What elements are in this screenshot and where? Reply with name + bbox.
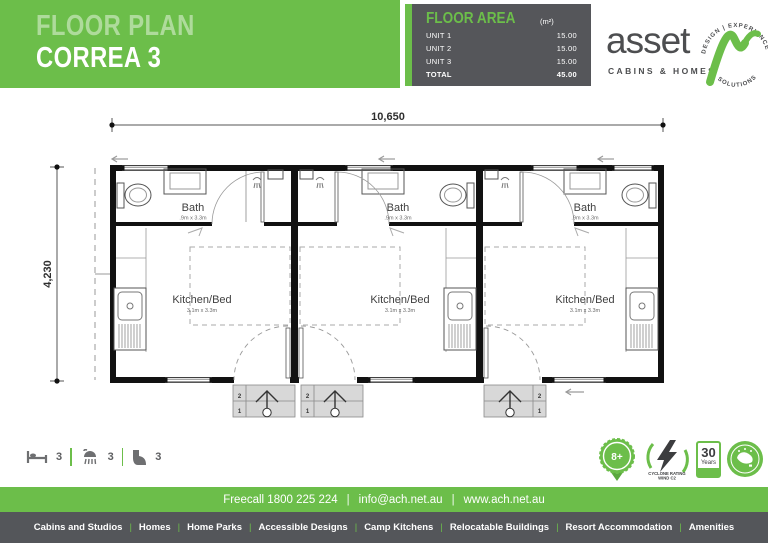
toilet-fixture <box>622 184 648 206</box>
nav-separator: | <box>355 522 357 533</box>
australian-made-badge <box>726 440 764 478</box>
legend-divider <box>122 448 124 466</box>
entry-stairs: 2 1 <box>484 385 546 417</box>
contact-separator: | <box>452 494 455 506</box>
room-dims-kitchen-bed: 3.1m x 3.3m <box>187 308 218 314</box>
window <box>368 378 415 383</box>
nav-item-camp-kitchens[interactable]: Camp Kitchens <box>364 522 433 533</box>
shower-icon <box>80 449 100 466</box>
warranty-badge-text: 8+ <box>611 452 623 463</box>
cabinet-fixture <box>485 170 498 179</box>
entry-stairs: 2 1 <box>233 385 295 417</box>
toilet-fixture <box>125 184 151 206</box>
roof-overhang-line <box>95 168 110 380</box>
window <box>531 166 579 171</box>
window-slide-arrows <box>112 156 614 395</box>
room-label-bath: Bath <box>574 202 597 214</box>
room-dims-bath: .9m x 3.3m <box>179 216 207 222</box>
nav-separator: | <box>249 522 251 533</box>
nav-item-resort-accommodation[interactable]: Resort Accommodation <box>566 522 673 533</box>
kitchen-sink <box>626 288 658 350</box>
entry-door <box>299 326 355 380</box>
window <box>345 166 393 171</box>
nav-separator: | <box>679 522 681 533</box>
nav-item-home-parks[interactable]: Home Parks <box>187 522 242 533</box>
entry-door <box>484 326 540 380</box>
thirty-years-badge: 30 Years <box>696 441 721 478</box>
toilet-icon <box>131 449 147 466</box>
nav-separator: | <box>178 522 180 533</box>
bed-icon <box>26 449 48 465</box>
nav-item-cabins-and-studios[interactable]: Cabins and Studios <box>34 522 123 533</box>
room-dims-kitchen-bed: 3.1m x 3.3m <box>570 308 601 314</box>
toilet-fixture <box>117 183 124 208</box>
kitchen-sink <box>114 288 146 350</box>
category-nav-bar: Cabins and Studios | Homes | Home Parks … <box>0 512 768 543</box>
room-dims-bath: .9m x 3.3m <box>571 216 599 222</box>
brochure-page: FLOOR PLAN CORREA 3 FLOOR AREA (m²) UNIT… <box>0 0 768 543</box>
fold-arrow <box>575 228 589 236</box>
nav-item-homes[interactable]: Homes <box>139 522 171 533</box>
room-dims-bath: .9m x 3.3m <box>384 216 412 222</box>
cyclone-rating-badge: CYCLONE RATING WIND C2 <box>643 438 691 480</box>
bath-door <box>520 172 574 224</box>
cabinet-fixture <box>268 170 283 179</box>
years-word: Years <box>701 460 716 467</box>
fold-arrow <box>390 228 404 236</box>
room-label-bath: Bath <box>387 202 410 214</box>
toilet-count: 3 <box>155 451 161 463</box>
dimension-height-label: 4,230 <box>42 260 54 288</box>
bed-count: 3 <box>56 451 62 463</box>
window <box>552 378 606 383</box>
entry-door <box>234 326 290 380</box>
room-label-bath: Bath <box>182 202 205 214</box>
nav-item-accessible-designs[interactable]: Accessible Designs <box>258 522 347 533</box>
shower-count: 3 <box>108 451 114 463</box>
room-label-kitchen-bed: Kitchen/Bed <box>555 294 614 306</box>
contact-separator: | <box>347 494 350 506</box>
contact-bar: Freecall 1800 225 224 | info@ach.net.au … <box>0 487 768 512</box>
dimension-height: 4,230 <box>42 164 64 383</box>
years-number: 30 <box>701 445 715 460</box>
window <box>165 378 212 383</box>
windows-top <box>112 156 654 395</box>
dimension-width: 10,650 <box>109 111 665 132</box>
room-dims-kitchen-bed: 3.1m x 3.3m <box>385 308 416 314</box>
window <box>612 166 654 171</box>
contact-email[interactable]: info@ach.net.au <box>359 494 443 506</box>
toilet-fixture <box>649 183 656 208</box>
entry-stairs: 2 1 <box>301 385 363 417</box>
bath-door <box>212 172 264 224</box>
nav-item-amenities[interactable]: Amenities <box>689 522 734 533</box>
building-walls <box>110 165 664 383</box>
years-band <box>698 468 719 476</box>
shower-fixture <box>316 178 324 189</box>
dimension-width-label: 10,650 <box>371 111 405 123</box>
cyclone-badge-line2: WIND C2 <box>658 476 676 481</box>
warranty-badge: 8+ <box>596 437 638 481</box>
nav-item-relocatable-buildings[interactable]: Relocatable Buildings <box>450 522 549 533</box>
freecall-number[interactable]: Freecall 1800 225 224 <box>223 494 337 506</box>
fixture-legend: 3 3 3 <box>26 444 161 470</box>
nav-separator: | <box>129 522 131 533</box>
room-label-kitchen-bed: Kitchen/Bed <box>370 294 429 306</box>
kitchen-sink <box>444 288 476 350</box>
toilet-fixture <box>440 184 466 206</box>
toilet-fixture <box>467 183 474 208</box>
fold-arrow <box>188 228 202 236</box>
window <box>122 166 170 171</box>
shower-fixture <box>253 178 261 189</box>
nav-separator: | <box>440 522 442 533</box>
certification-badges: 8+ CYCLONE RATING WIND C2 30 Years <box>596 437 764 481</box>
shower-fixture <box>501 178 509 189</box>
cabinet-fixture <box>300 170 313 179</box>
unit-divider-wall <box>291 165 298 383</box>
legend-divider <box>70 448 72 466</box>
contact-website[interactable]: www.ach.net.au <box>464 494 545 506</box>
nav-separator: | <box>556 522 558 533</box>
room-label-kitchen-bed: Kitchen/Bed <box>172 294 231 306</box>
unit-divider-wall <box>476 165 483 383</box>
